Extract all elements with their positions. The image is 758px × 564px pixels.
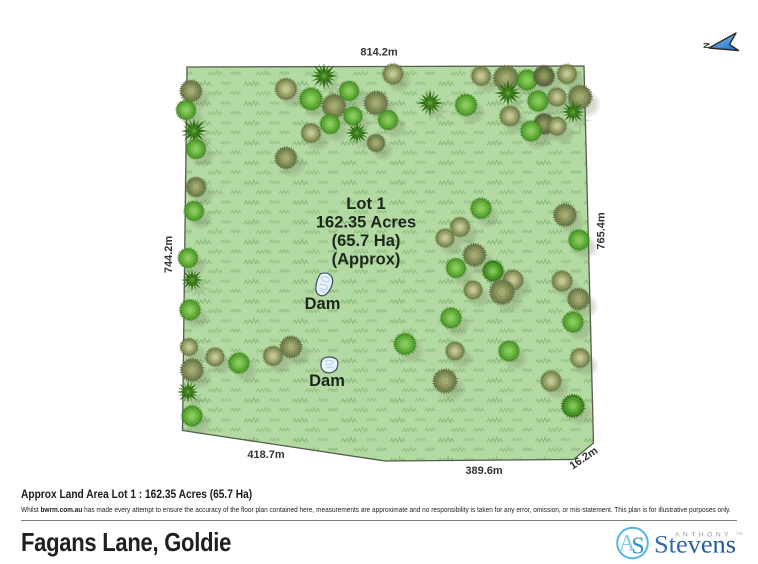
svg-text:389.6m: 389.6m: [465, 465, 503, 477]
svg-text:(65.7 Ha): (65.7 Ha): [332, 232, 401, 250]
svg-text:N: N: [702, 43, 711, 49]
svg-text:162.35 Acres: 162.35 Acres: [316, 214, 416, 232]
svg-text:744.2m: 744.2m: [163, 236, 175, 274]
svg-text:S: S: [631, 534, 644, 560]
svg-text:418.7m: 418.7m: [247, 449, 285, 461]
svg-text:Stevens: Stevens: [654, 532, 736, 559]
svg-text:Dam: Dam: [305, 295, 341, 313]
svg-text:Lot 1: Lot 1: [346, 195, 385, 213]
svg-text:TM: TM: [736, 531, 743, 536]
svg-text:Dam: Dam: [309, 372, 345, 390]
svg-text:765.4m: 765.4m: [596, 212, 608, 250]
svg-text:814.2m: 814.2m: [360, 47, 398, 59]
svg-text:(Approx): (Approx): [332, 251, 401, 269]
